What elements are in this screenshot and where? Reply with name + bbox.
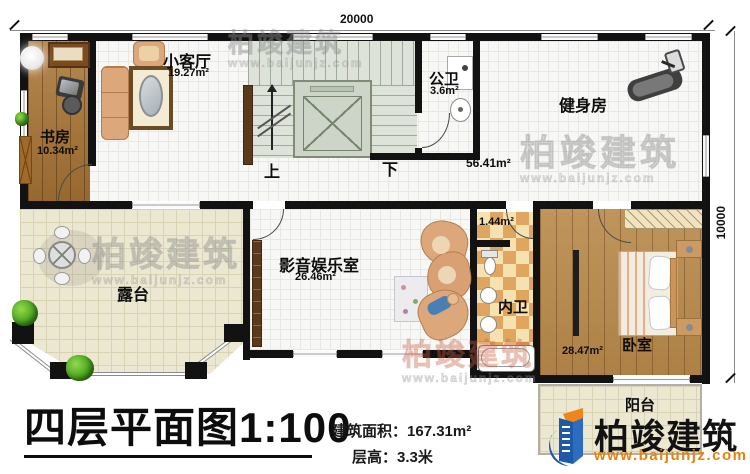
hall-cabinet	[243, 85, 253, 165]
pubbath-toilet-drain	[458, 107, 463, 112]
bed-pillow-1	[648, 255, 672, 290]
wall-media-bottom-2	[337, 350, 382, 358]
wall-media-bottom-1	[243, 350, 293, 358]
elevator-door	[310, 86, 354, 92]
wall-bath-left	[470, 209, 477, 378]
label-terrace: 露台	[117, 281, 149, 305]
bed-pillow-2	[648, 295, 672, 330]
media-rug-flower-3	[403, 309, 408, 314]
area-small-living: 19.27m²	[168, 67, 209, 79]
area-bedroom: 28.47m²	[562, 345, 603, 357]
stairs-right-flight	[372, 85, 417, 158]
media-rug-flower-2	[413, 299, 418, 304]
floor-height-value: 3.3米	[397, 449, 433, 466]
wall-mid-2	[200, 201, 253, 209]
terrace-table	[48, 241, 76, 269]
plan-title: 四层平面图1:100	[24, 394, 351, 455]
label-gym: 健身房	[559, 92, 607, 116]
study-desk-top	[53, 47, 83, 61]
living-armchair	[133, 41, 165, 67]
person-head	[447, 293, 459, 305]
wall-bedroom-bottom-1	[533, 375, 613, 383]
window-top-3	[293, 34, 373, 40]
area-open-space: 56.41m²	[466, 156, 511, 170]
media-console	[252, 240, 262, 347]
window-top-1	[32, 34, 68, 40]
innerbath-tub-inner	[481, 348, 530, 367]
dimension-line-right	[734, 31, 735, 383]
living-armchair-cushion	[139, 46, 159, 61]
label-study: 书房	[40, 126, 70, 147]
stairs-top-flight	[248, 41, 417, 85]
plan-title-text: 四层平面图	[24, 404, 239, 451]
wall-vestibule-stub	[473, 240, 510, 247]
study-monitor-screen	[59, 79, 79, 95]
study-desk	[48, 42, 90, 68]
terrace-pillar-4	[224, 324, 244, 342]
study-lamp	[20, 46, 44, 70]
bed-blanket-stripes	[619, 252, 645, 335]
terrace-chair-east	[78, 248, 91, 264]
stairs-down-label: 下	[382, 156, 398, 180]
nightstand-knob-2	[686, 324, 693, 331]
innerbath-sink-2	[480, 316, 497, 333]
window-top-6	[645, 34, 692, 40]
innerbath-bathtub	[478, 345, 535, 372]
media-rug-flower-1	[401, 285, 406, 290]
wall-media-left	[243, 209, 250, 360]
window-top-4	[430, 34, 466, 40]
terrace-pillar-3	[185, 362, 207, 379]
dimension-label-right: 10000	[712, 206, 730, 239]
terrace-plant-1	[12, 300, 38, 326]
wall-mid-5	[631, 201, 710, 209]
wall-mid-1	[20, 201, 132, 209]
wall-bedroom-bottom-2	[690, 375, 710, 383]
bedroom-wardrobe	[625, 210, 702, 229]
living-rug	[129, 66, 173, 130]
bedroom-nightstand-1	[676, 240, 702, 258]
media-sofa-cushion-1	[432, 236, 450, 254]
innerbath-toilet-bowl	[484, 257, 496, 275]
study-chair	[62, 95, 82, 115]
bedroom-nightstand-2	[676, 318, 702, 336]
living-table-glass	[139, 75, 163, 117]
label-bedroom: 卧室	[622, 334, 652, 355]
title-underline	[24, 455, 312, 458]
dimension-tick-top-left	[9, 20, 20, 31]
terrace-chair-west	[33, 248, 46, 264]
window-top-5	[541, 34, 598, 40]
wall-pubbath-left-upper	[415, 41, 422, 113]
floor-plan: 20000 10000	[0, 0, 750, 474]
dimension-line-top	[10, 30, 715, 31]
dimension-tick-top-right	[703, 20, 714, 31]
innerbath-sink-1	[480, 287, 497, 304]
building-area-line: 建筑面积：167.31m²	[332, 420, 471, 441]
terrace-plant-2	[66, 355, 94, 381]
media-window-2	[382, 351, 423, 357]
area-vestibule: 1.44m²	[479, 216, 514, 228]
floor-height-line: 层高：3.3米	[352, 446, 433, 467]
pubbath-faucet	[462, 65, 468, 71]
building-area-label: 建筑面积：	[332, 423, 407, 440]
wall-media-bottom-3	[423, 350, 477, 358]
window-top-2	[132, 34, 208, 40]
wall-mid-4	[533, 201, 593, 209]
wall-pubbath-right	[473, 41, 480, 160]
floor-height-label: 层高：	[352, 449, 397, 466]
area-media-room: 26.46m²	[295, 271, 336, 283]
stairs-up-label: 上	[264, 158, 280, 182]
brand-logo-url: www.baijunjz.com	[594, 447, 747, 464]
brand-logo-icon	[543, 406, 591, 468]
area-public-bath: 3.6m²	[430, 85, 459, 97]
bedroom-tv	[573, 250, 579, 336]
elevator-cross-box	[303, 96, 362, 151]
pubbath-toilet	[450, 98, 471, 122]
area-study: 10.34m²	[37, 145, 78, 157]
media-window-1	[293, 351, 337, 357]
media-sofa-cushion-2	[438, 266, 456, 284]
stairs-arrow-head	[267, 84, 277, 92]
window-right-1	[703, 135, 709, 177]
study-cabinet	[19, 136, 32, 184]
terrace-chair-south	[54, 272, 70, 285]
wall-mid-3	[285, 201, 506, 209]
terrace-sliding-door	[132, 202, 200, 208]
label-inner-bath: 内卫	[498, 296, 528, 317]
study-plant	[15, 112, 29, 126]
building-area-value: 167.31m²	[407, 423, 471, 440]
bedroom-bed	[618, 251, 678, 336]
terrace-chair-north	[54, 226, 70, 239]
living-sofa	[101, 66, 129, 140]
nightstand-knob-1	[686, 246, 693, 253]
dimension-label-top: 20000	[338, 12, 375, 26]
balcony-sliding-door	[613, 377, 690, 382]
